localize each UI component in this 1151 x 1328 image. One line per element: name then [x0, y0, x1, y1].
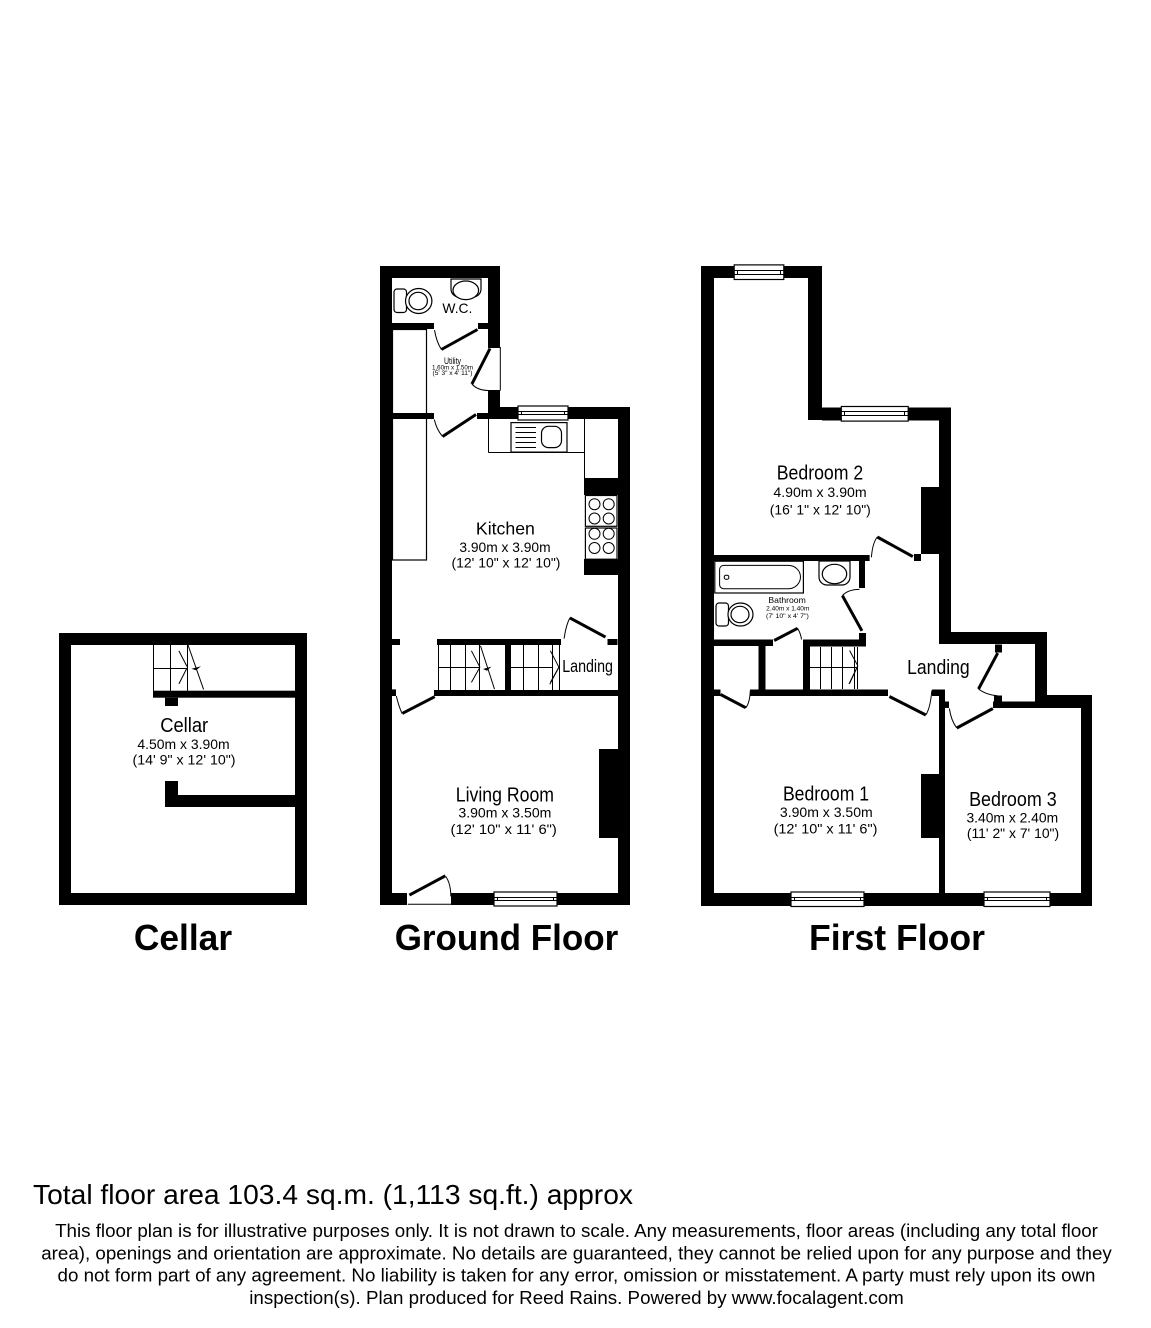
svg-text:Cellar: Cellar	[134, 917, 232, 958]
svg-text:(12' 10" x 11' 6"): (12' 10" x 11' 6")	[774, 820, 878, 836]
svg-text:(11' 2" x 7' 10"): (11' 2" x 7' 10")	[967, 825, 1059, 841]
svg-text:Bedroom 2: Bedroom 2	[777, 462, 864, 484]
svg-text:Bedroom 3: Bedroom 3	[969, 789, 1057, 811]
svg-text:First Floor: First Floor	[809, 917, 985, 958]
svg-text:Kitchen: Kitchen	[476, 519, 535, 539]
svg-text:3.40m x 2.40m: 3.40m x 2.40m	[966, 810, 1058, 826]
svg-text:Bedroom 1: Bedroom 1	[783, 783, 869, 805]
svg-text:(16' 1" x 12' 10"): (16' 1" x 12' 10")	[770, 501, 871, 517]
svg-text:(12' 10" x 11' 6"): (12' 10" x 11' 6")	[451, 821, 557, 837]
svg-text:(7' 10" x 4' 7"): (7' 10" x 4' 7")	[766, 613, 809, 620]
svg-text:Landing: Landing	[907, 656, 970, 679]
svg-text:Ground Floor: Ground Floor	[395, 917, 619, 958]
svg-text:Total floor area 103.4 sq.m. (: Total floor area 103.4 sq.m. (1,113 sq.f…	[33, 1178, 633, 1210]
svg-text:This floor plan is for illustr: This floor plan is for illustrative purp…	[55, 1220, 1098, 1241]
svg-text:2.40m x 1.40m: 2.40m x 1.40m	[766, 606, 809, 613]
svg-text:Landing: Landing	[562, 656, 613, 676]
svg-text:(12' 10" x 12' 10"): (12' 10" x 12' 10")	[452, 555, 561, 571]
svg-text:3.90m x 3.50m: 3.90m x 3.50m	[458, 805, 551, 821]
svg-text:Cellar: Cellar	[160, 715, 208, 737]
svg-text:(5' 3" x 4' 11"): (5' 3" x 4' 11")	[433, 370, 473, 377]
svg-text:Bathroom: Bathroom	[768, 595, 805, 605]
svg-text:(14' 9" x 12' 10"): (14' 9" x 12' 10")	[133, 752, 236, 768]
svg-text:3.90m x 3.50m: 3.90m x 3.50m	[780, 804, 873, 820]
svg-text:area), openings and orientatio: area), openings and orientation are appr…	[41, 1243, 1112, 1264]
svg-text:4.90m x 3.90m: 4.90m x 3.90m	[773, 484, 866, 500]
svg-text:3.90m x 3.90m: 3.90m x 3.90m	[459, 539, 550, 555]
svg-text:do not form part of any agreem: do not form part of any agreement. No li…	[58, 1265, 1096, 1286]
svg-text:inspection(s). Plan produced f: inspection(s). Plan produced for Reed Ra…	[249, 1287, 904, 1308]
svg-text:Living Room: Living Room	[456, 785, 554, 807]
svg-text:4.50m x 3.90m: 4.50m x 3.90m	[137, 736, 229, 752]
svg-text:W.C.: W.C.	[442, 300, 472, 316]
